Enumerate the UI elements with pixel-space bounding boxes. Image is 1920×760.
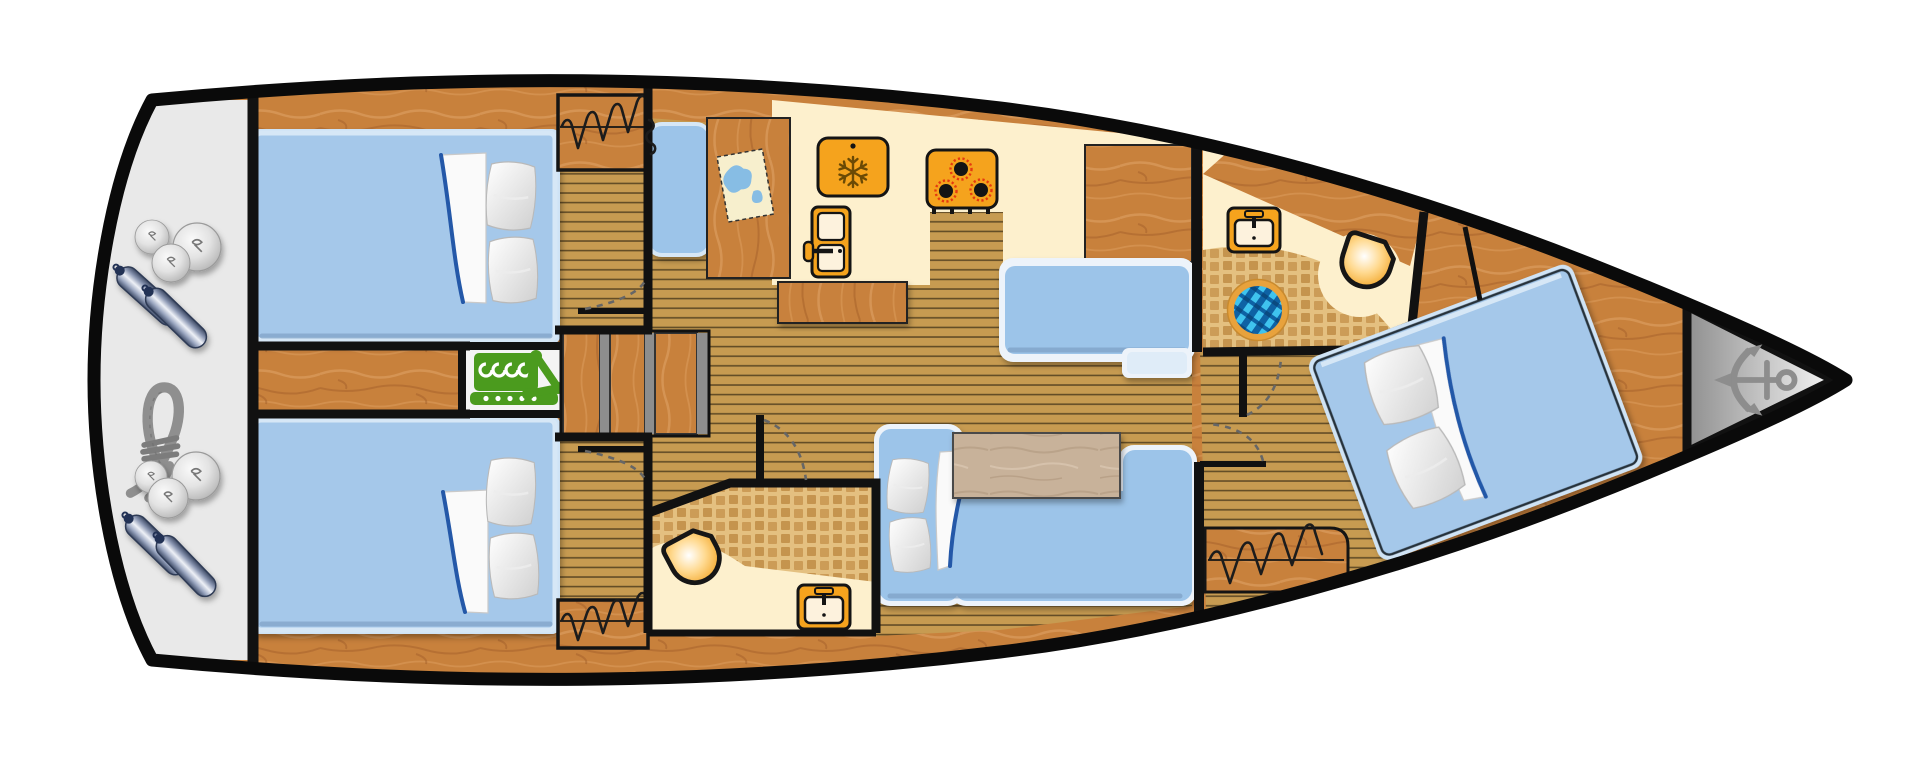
upper-settee <box>999 258 1195 378</box>
aft-cabin-stbd-floor <box>558 437 648 600</box>
stove <box>927 150 997 214</box>
settee-pillow <box>887 516 932 574</box>
aft-cabin-port-bed <box>252 129 560 344</box>
pillow <box>487 236 539 304</box>
shower-icon <box>1228 280 1289 341</box>
galley-island-table <box>778 282 907 323</box>
aft-head <box>648 483 876 633</box>
pillow <box>485 457 537 527</box>
wardrobe-aft-port <box>558 95 652 170</box>
fridge-door-icon <box>804 207 850 277</box>
galley-cabinet <box>1085 145 1192 262</box>
engine-compartment <box>462 346 568 414</box>
refrigerator <box>818 138 888 196</box>
wardrobe-aft-stbd <box>558 593 652 648</box>
yacht-floor-plan <box>0 0 1920 760</box>
companionway-steps <box>561 331 709 436</box>
saloon-table <box>953 433 1120 498</box>
sink-icon <box>798 585 850 629</box>
aft-cabin-port-floor <box>558 170 648 330</box>
sink-icon <box>1228 208 1280 252</box>
yacht-floor-plan-canvas <box>0 0 1920 760</box>
settee-pillow <box>885 457 931 515</box>
nav-seat <box>648 124 710 255</box>
pillow <box>484 160 538 231</box>
pillow <box>487 532 540 601</box>
